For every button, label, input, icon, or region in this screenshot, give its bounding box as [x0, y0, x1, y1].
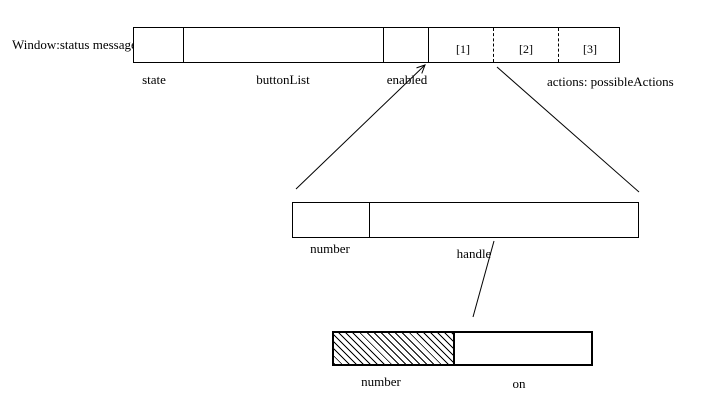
- button-number-field-label: number: [310, 242, 350, 255]
- divider-buttonlist-enabled: [383, 28, 384, 62]
- button-record-box: [292, 202, 639, 238]
- state-field-label: state: [142, 73, 166, 86]
- handle-number-hatched-cell: [334, 333, 455, 364]
- action-slot-1-label: [1]: [456, 43, 470, 55]
- handle-record-box: [332, 331, 593, 366]
- diagram-canvas: Window:status message [1] [2] [3] state …: [0, 0, 711, 401]
- action-slot-3-label: [3]: [583, 43, 597, 55]
- divider-slot2-slot3: [558, 28, 559, 62]
- window-title-label: Window:status message: [12, 38, 137, 51]
- divider-slot1-slot2: [493, 28, 494, 62]
- buttonlist-field-label: buttonList: [256, 73, 309, 86]
- window-record-box: [1] [2] [3]: [133, 27, 620, 63]
- action-slot-2-label: [2]: [519, 43, 533, 55]
- actions-field-label: actions: possibleActions: [547, 75, 674, 88]
- button-handle-field-label: handle: [457, 247, 492, 260]
- divider-enabled-actions: [428, 28, 429, 62]
- enabled-field-label: enabled: [387, 73, 427, 86]
- divider-number-handle: [369, 203, 370, 237]
- handle-number-field-label: number: [361, 375, 401, 388]
- handle-on-field-label: on: [513, 377, 526, 390]
- divider-state-buttonlist: [183, 28, 184, 62]
